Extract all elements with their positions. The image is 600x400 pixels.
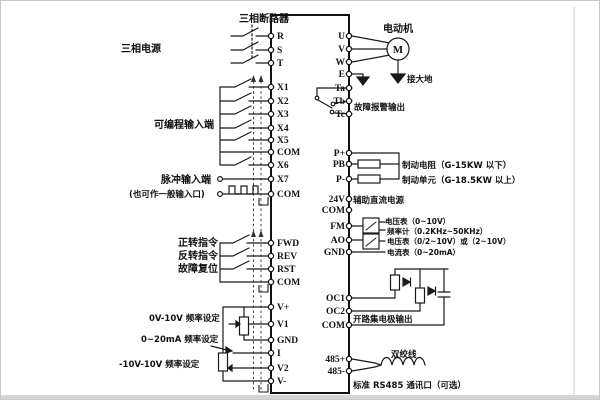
terminal-point-Vminus: [268, 378, 273, 383]
terminal-point-W: [346, 59, 351, 64]
terminal-point-X5: [268, 137, 273, 142]
terminal-label: S: [277, 46, 282, 56]
shield-hook-icon: [259, 284, 268, 292]
terminal-label: FWD: [277, 239, 299, 249]
terminal-point-24V: [346, 196, 351, 201]
potentiometer-icon: [240, 317, 249, 335]
open-collector-label: 开路集电极输出: [353, 314, 413, 325]
terminal-label: Tc: [335, 110, 345, 120]
motor-label: 电动机: [383, 22, 413, 35]
terminal-label: COM: [277, 190, 300, 200]
terminal-label: X1: [277, 83, 289, 93]
brake-unit-label: 制动单元（G-18.5KW 以上）: [402, 175, 520, 186]
terminal-label: R: [277, 32, 284, 42]
motor-m-label: M: [393, 44, 404, 56]
terminal-point-485plus: [346, 356, 351, 361]
terminal-label: Tb: [333, 97, 345, 107]
terminal-point-X1: [268, 84, 273, 89]
meter-freq-label: 频率计（0.2KHz~50KHz）: [387, 226, 487, 236]
ground-icon: [357, 77, 369, 85]
terminal-label: 485-: [328, 367, 345, 377]
terminal-label: T: [277, 59, 284, 69]
potentiometer-icon: [219, 353, 228, 371]
terminal-point-COM5: [346, 322, 351, 327]
terminal-label: V-: [277, 377, 286, 387]
shield-hook-icon: [259, 384, 268, 392]
pulse-input-note: (也可作一般输入口): [129, 189, 205, 200]
terminal-point-OC2: [346, 308, 351, 313]
terminal-point-V1: [268, 321, 273, 326]
pointer-arrow-icon: [226, 347, 232, 353]
terminal-point-X3: [268, 111, 273, 116]
terminal-point-COM3: [268, 279, 273, 284]
terminal-label: W: [336, 58, 346, 68]
reverse-cmd-label: 反转指令: [178, 249, 219, 262]
terminal-label: GND: [277, 336, 298, 346]
terminal-point-FWD: [268, 240, 273, 245]
braking-circuit: [352, 153, 399, 183]
terminal-label: P+: [334, 149, 345, 159]
programmable-inputs-label: 可编程输入端: [154, 118, 214, 131]
resistor-icon: [358, 175, 380, 183]
load-box-icon: [391, 275, 400, 290]
terminal-point-R: [268, 33, 273, 38]
pulse-input-label: 脉冲输入端: [160, 173, 211, 186]
freq-set-0-20ma-label: 0~20mA 频率设定: [141, 334, 219, 345]
terminal-label: X5: [277, 136, 289, 146]
terminal-point-T: [268, 60, 273, 65]
terminal-point-Pminus: [346, 176, 351, 181]
brake-resistor-label: 制动电阻（G-15KW 以下）: [402, 160, 511, 171]
rs485-label: 标准 RS485 通讯口（可选）: [352, 380, 466, 391]
terminal-label: 485+: [325, 355, 345, 365]
earth-label: 接大地: [407, 74, 433, 85]
wiring-diagram: R S T X1 X2 X3 X4 X5 COM X6 X7 COM FWD R…: [0, 0, 600, 400]
terminal-label: V1: [277, 320, 289, 330]
terminal-point-AO: [346, 237, 351, 242]
meter-amp-label: 电流表（0~20mA）: [387, 247, 460, 257]
terminal-point-GND: [268, 337, 273, 342]
terminal-point-V2: [268, 365, 273, 370]
shield-hook-icon: [259, 197, 268, 205]
terminal-label: OC1: [326, 294, 345, 304]
terminal-point-V: [346, 46, 351, 51]
power-label: 三相电源: [121, 42, 161, 55]
pulse-input: [218, 177, 268, 197]
terminal-point-X7: [268, 176, 273, 181]
meter-outputs: [352, 218, 385, 252]
terminal-label: X4: [277, 124, 289, 134]
twisted-pair-label: 双绞线: [391, 349, 417, 360]
shield-hooks: [259, 197, 268, 392]
terminal-point-I: [268, 350, 273, 355]
terminal-point-U: [346, 33, 351, 38]
terminal-label: GND: [324, 248, 345, 258]
terminal-label: P-: [336, 175, 345, 185]
load-box-icon: [416, 288, 425, 303]
terminal-point-X2: [268, 98, 273, 103]
terminal-label: Ta: [335, 84, 345, 94]
fault-alarm-label: 故障报警输出: [354, 102, 405, 113]
terminal-label: AO: [331, 236, 345, 246]
terminal-label: OC2: [326, 307, 345, 317]
terminal-label: RST: [277, 265, 296, 275]
terminal-label: COM: [322, 321, 345, 331]
terminal-point-COM2: [268, 191, 273, 196]
terminal-label: U: [338, 32, 345, 42]
breaker-label: 三相断路器: [239, 12, 290, 25]
shield-arrows: [251, 75, 264, 237]
freq-set-0-10v-label: 0V-10V 频率设定: [149, 313, 220, 324]
meter-volt2-label: 电压表（0/2~10V）或（2~10V）: [387, 236, 510, 246]
pointer-arrow: [211, 346, 227, 350]
terminal-label: V+: [277, 303, 289, 313]
terminal-label: V2: [277, 364, 289, 374]
terminal-label: I: [277, 349, 281, 359]
terminal-point-485minus: [346, 368, 351, 373]
diagram-canvas: R S T X1 X2 X3 X4 X5 COM X6 X7 COM FWD R…: [1, 1, 600, 400]
terminal-label: X3: [277, 110, 289, 120]
resistor-icon: [358, 160, 380, 168]
aux-dc-label: 辅助直流电源: [353, 195, 405, 206]
three-phase-input: [231, 25, 268, 63]
terminal-label: X6: [277, 161, 289, 171]
terminal-point-Ta: [346, 85, 351, 90]
terminal-point-X4: [268, 125, 273, 130]
diode-icon: [428, 287, 435, 295]
terminal-point-RST: [268, 266, 273, 271]
fault-reset-label: 故障复位: [178, 262, 218, 275]
terminal-label: E: [339, 70, 345, 80]
terminal-point-COM1: [268, 149, 273, 154]
terminal-point-X6: [268, 162, 273, 167]
terminal-label: V: [338, 45, 345, 55]
terminal-point-Tc: [346, 111, 351, 116]
terminal-label: X2: [277, 97, 289, 107]
diode-icon: [403, 278, 410, 286]
terminal-point-OC1: [346, 295, 351, 300]
terminal-point-PB: [346, 161, 351, 166]
terminal-label: 24V: [329, 195, 346, 205]
ground-icon: [391, 74, 405, 83]
terminal-point-Pplus: [346, 150, 351, 155]
terminal-label: REV: [277, 252, 297, 262]
terminal-label: COM: [322, 206, 345, 216]
terminal-point-GND2: [346, 249, 351, 254]
terminal-point-E: [346, 71, 351, 76]
terminal-point-FM: [346, 223, 351, 228]
terminal-point-Tb: [346, 98, 351, 103]
freq-set-pm10v-label: -10V-10V 频率设定: [119, 359, 200, 370]
terminal-label: X7: [277, 175, 289, 185]
terminal-label: FM: [330, 222, 345, 232]
terminal-label: COM: [277, 278, 300, 288]
terminal-point-COM4: [346, 207, 351, 212]
page-bottom-edge: [1, 395, 600, 400]
terminal-label: PB: [333, 160, 346, 170]
terminal-label: COM: [277, 148, 300, 158]
meter-volt1-label: 电压表（0~10V）: [385, 216, 450, 226]
terminal-point-REV: [268, 253, 273, 258]
terminal-point-S: [268, 47, 273, 52]
forward-cmd-label: 正转指令: [178, 236, 219, 249]
terminal-point-Vplus: [268, 304, 273, 309]
